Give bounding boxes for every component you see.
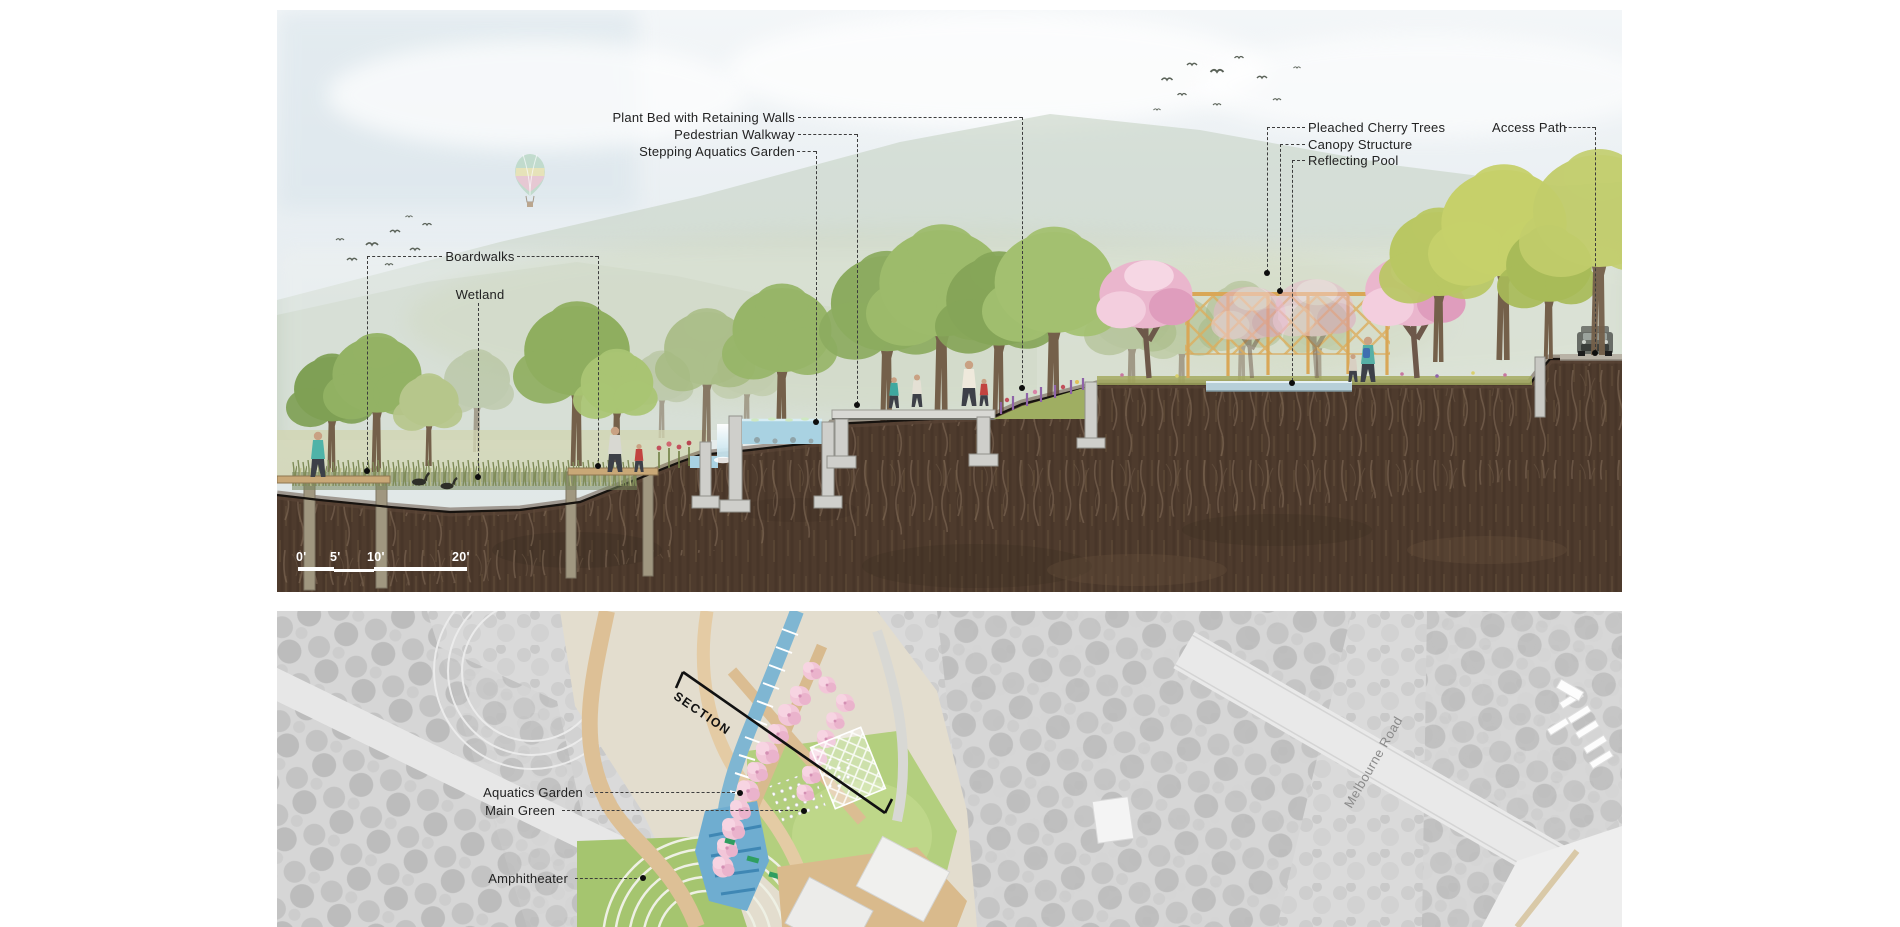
leader-canopy-h (1280, 144, 1305, 145)
leader-access-v (1595, 127, 1596, 352)
leader-stepping-v (816, 151, 817, 421)
scale-bar-segment (334, 569, 374, 572)
leader-access-h (1564, 127, 1595, 128)
scale-bar-segment (298, 567, 334, 571)
label-pleached-cherry: Pleached Cherry Trees (1308, 121, 1445, 134)
label-access-path: Access Path (1492, 121, 1566, 134)
label-canopy-structure: Canopy Structure (1308, 138, 1412, 151)
leader-plant-bed-h (798, 117, 1022, 118)
leader-boardwalks-left-v (367, 256, 368, 470)
label-reflecting-pool: Reflecting Pool (1308, 154, 1398, 167)
leader-boardwalks-right-h (517, 256, 598, 257)
leader-plant-bed-v (1022, 117, 1023, 388)
leader-canopy-dot (1277, 288, 1283, 294)
leader-cherry-dot (1264, 270, 1270, 276)
presentation-canvas: Plant Bed with Retaining Walls Pedestria… (0, 0, 1900, 927)
leader-wetland-dot (475, 474, 481, 480)
leader-boardwalks-left-dot (364, 468, 370, 474)
plan-drawing-panel: SECTION Melbourne Road Aquatics Garden M… (277, 611, 1622, 927)
leader-pool-v (1292, 160, 1293, 381)
leader-amphitheater-dot (640, 875, 646, 881)
boardwalk-right (568, 468, 658, 475)
leader-plant-bed-dot (1019, 385, 1025, 391)
reflecting-pool (1206, 382, 1352, 391)
white-building (1092, 797, 1133, 844)
leader-amphitheater-h (575, 878, 637, 879)
label-main-green: Main Green (355, 804, 555, 817)
section-drawing-panel: Plant Bed with Retaining Walls Pedestria… (277, 10, 1622, 592)
leader-cherry-v (1267, 127, 1268, 272)
leader-access-dot (1592, 350, 1598, 356)
scale-tick-0: 0' (296, 550, 307, 564)
waterfall (717, 424, 729, 458)
label-pedestrian-walkway: Pedestrian Walkway (495, 128, 795, 141)
leader-pedestrian-v (857, 134, 858, 404)
leader-pool-dot (1289, 380, 1295, 386)
leader-stepping-dot (813, 419, 819, 425)
label-aquatics-garden: Aquatics Garden (383, 786, 583, 799)
scale-tick-5: 5' (330, 550, 341, 564)
label-amphitheater: Amphitheater (368, 872, 568, 885)
leader-pedestrian-h (798, 134, 857, 135)
scale-tick-10: 10' (367, 550, 385, 564)
leader-pedestrian-dot (854, 402, 860, 408)
leader-boardwalks-right-v (598, 256, 599, 466)
leader-pool-h (1292, 160, 1305, 161)
label-wetland: Wetland (380, 288, 580, 301)
leader-cherry-h (1267, 127, 1305, 128)
leader-aquatics-h (590, 792, 735, 793)
leader-wetland-v (478, 303, 479, 476)
leader-main-green-dot (801, 808, 807, 814)
leader-stepping-h (797, 151, 816, 152)
label-plant-bed: Plant Bed with Retaining Walls (495, 111, 795, 124)
scale-tick-20: 20' (452, 550, 470, 564)
scale-bar-segment (374, 567, 467, 571)
boardwalk-left (277, 476, 390, 483)
leader-boardwalks-right-dot (595, 463, 601, 469)
leader-aquatics-dot (737, 790, 743, 796)
leader-main-green-h (562, 810, 798, 811)
label-stepping-aquatics: Stepping Aquatics Garden (495, 145, 795, 158)
leader-canopy-v (1280, 144, 1281, 290)
leader-boardwalks-left-h (367, 256, 442, 257)
